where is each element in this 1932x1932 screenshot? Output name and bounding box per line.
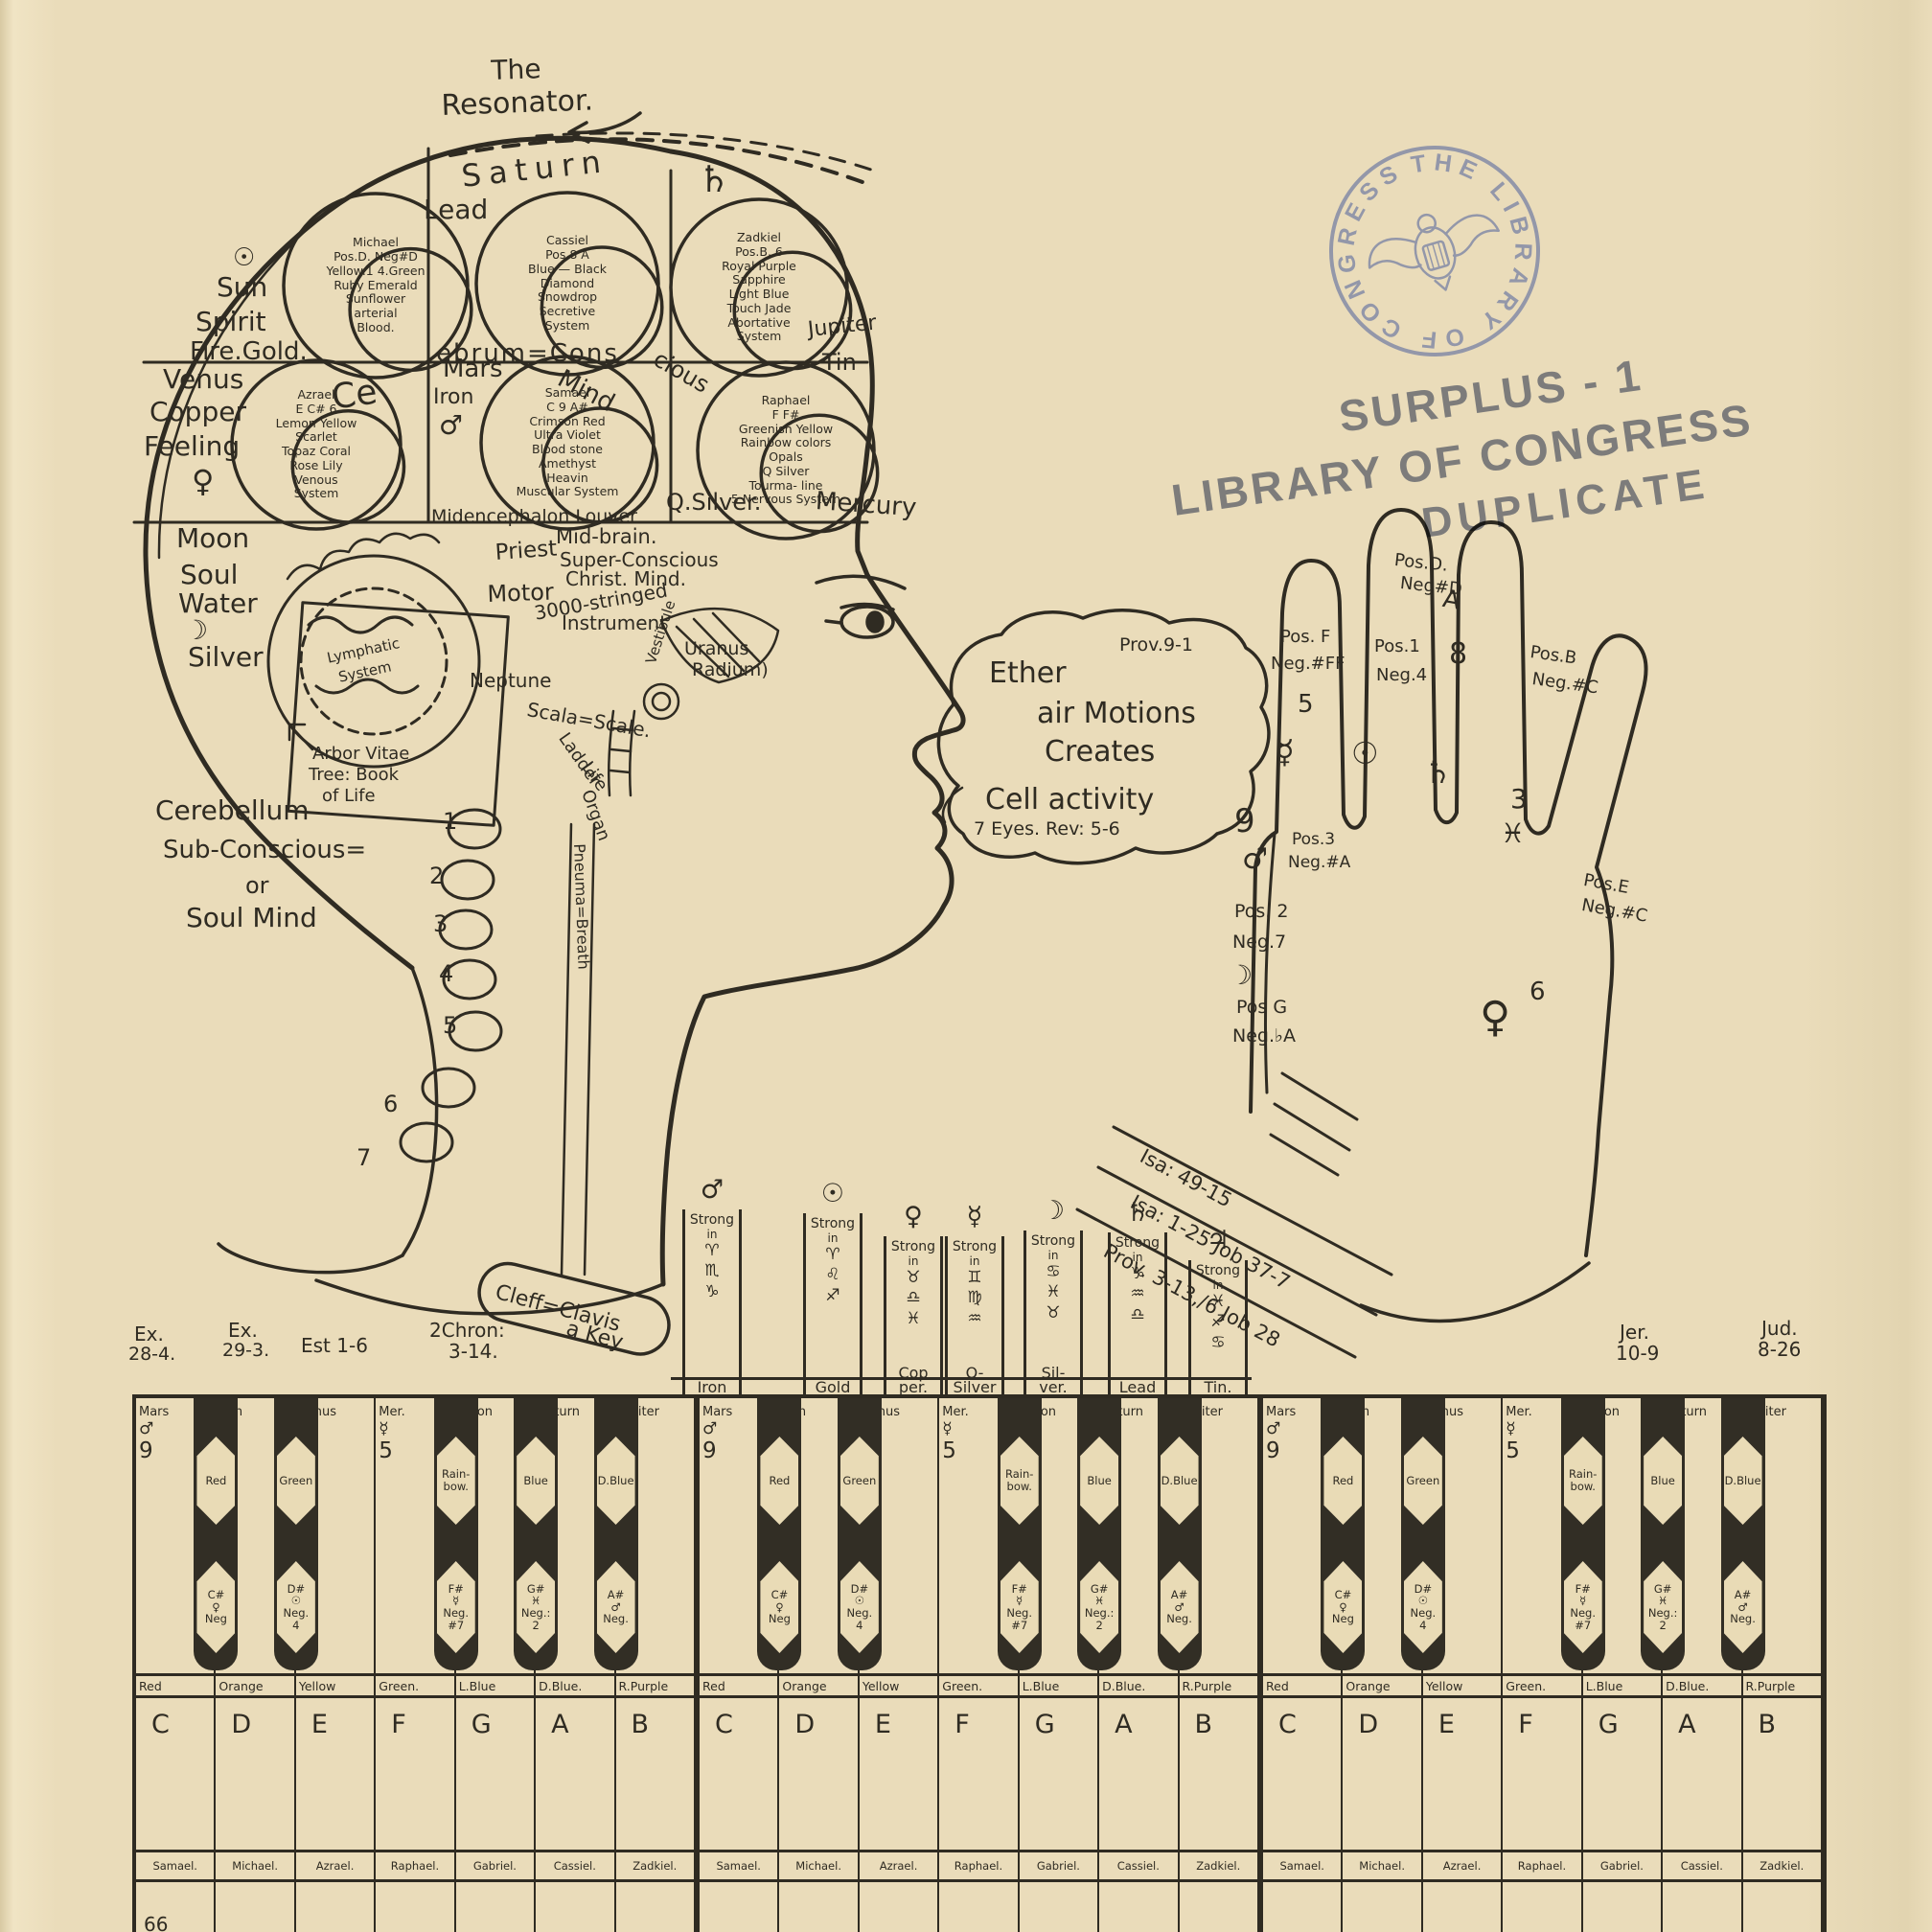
black-key-color-line: Red <box>769 1475 790 1487</box>
white-key-stub <box>1503 1882 1580 1932</box>
black-key-note-line: A# <box>1171 1589 1188 1601</box>
white-key-stub <box>296 1882 374 1932</box>
key-angel-name: Azrael. <box>1423 1850 1501 1882</box>
key-note-letter: G <box>1583 1698 1661 1850</box>
key-angel-name: Michael. <box>779 1850 857 1882</box>
black-key-note-hex: D#☉Neg.4 <box>840 1561 879 1653</box>
black-key-color-line: D.Blue <box>1725 1475 1761 1487</box>
black-key-note-hex: F#☿Neg.#7 <box>1564 1561 1602 1653</box>
black-key-color-line: Green <box>1406 1475 1439 1487</box>
black-key-A#-oct1: D.BlueA#♂Neg. <box>594 1398 638 1670</box>
keyboard-octave-1: Mars♂9RedCSamael.Sun☉1OrangeDMichael.Ven… <box>136 1398 700 1932</box>
key-color-name: Orange <box>1343 1673 1420 1698</box>
black-key-color-hex: Blue <box>1644 1437 1682 1525</box>
white-key-stub <box>616 1882 694 1932</box>
key-planet-name: Mars <box>1266 1406 1296 1419</box>
black-key-color-hex: Green <box>277 1437 315 1525</box>
black-key-note-line: C# <box>208 1589 225 1601</box>
key-color-name: L.Blue <box>456 1673 534 1698</box>
white-key-stub <box>939 1882 1017 1932</box>
hand-drawing <box>1077 510 1646 1357</box>
white-key-stub <box>216 1882 293 1932</box>
raphael-circle-outline <box>698 362 878 539</box>
cassiel-circle-outline <box>476 193 662 375</box>
key-planet-number: 9 <box>1266 1439 1296 1462</box>
key-angel-name: Raphael. <box>376 1850 453 1882</box>
black-key-color-line: D.Blue <box>598 1475 634 1487</box>
key-note-letter: B <box>616 1698 694 1850</box>
key-planet-name: Mars <box>702 1406 732 1419</box>
key-color-name: Red <box>1263 1673 1341 1698</box>
black-key-color-hex: D.Blue <box>1724 1437 1762 1525</box>
black-key-note-line: A# <box>608 1589 625 1601</box>
key-planet-name: Mer. <box>1506 1406 1532 1419</box>
key-color-name: Green. <box>376 1673 453 1698</box>
key-angel-name: Raphael. <box>939 1850 1017 1882</box>
black-key-D#-oct2: GreenD#☉Neg.4 <box>838 1398 882 1670</box>
key-color-name: Yellow <box>1423 1673 1501 1698</box>
black-key-note-line: Neg <box>769 1613 791 1625</box>
black-key-color-hex: Red <box>1323 1437 1362 1525</box>
key-planet-symbol-icon: ♂ <box>702 1421 732 1438</box>
black-key-note-hex: F#☿Neg.#7 <box>1000 1561 1039 1653</box>
key-color-name: Yellow <box>296 1673 374 1698</box>
key-color-name: R.Purple <box>1180 1673 1257 1698</box>
key-angel-name: Michael. <box>1343 1850 1420 1882</box>
michael-circle-outline <box>284 194 471 378</box>
key-note-letter: A <box>1663 1698 1740 1850</box>
black-key-color-hex: Red <box>196 1437 235 1525</box>
black-key-note-line: Neg. <box>284 1607 310 1620</box>
black-key-C#-oct1: RedC#♀Neg <box>194 1398 238 1670</box>
key-angel-name: Cassiel. <box>1663 1850 1740 1882</box>
black-key-note-line: #7 <box>1011 1620 1027 1632</box>
black-key-note-line: 2 <box>1095 1620 1102 1632</box>
key-color-name: Red <box>700 1673 777 1698</box>
black-key-color-hex: Blue <box>1080 1437 1118 1525</box>
black-key-note-line: Neg. <box>1730 1613 1756 1625</box>
white-key-stub <box>536 1882 613 1932</box>
white-key-stub <box>456 1882 534 1932</box>
eagle-icon <box>1360 196 1510 308</box>
key-note-letter: D <box>216 1698 293 1850</box>
black-key-color-hex: D.Blue <box>1161 1437 1199 1525</box>
black-key-color-hex: D.Blue <box>597 1437 635 1525</box>
white-key-stub <box>1583 1882 1661 1932</box>
black-key-color-line: D.Blue <box>1161 1475 1198 1487</box>
key-angel-name: Zadkiel. <box>1743 1850 1821 1882</box>
black-key-color-hex: Rain-bow. <box>1564 1437 1602 1525</box>
black-key-note-hex: C#♀Neg <box>760 1561 798 1653</box>
key-note-letter: A <box>1099 1698 1177 1850</box>
head-profile-drawing <box>146 113 963 1314</box>
metal-row-line <box>671 1377 1252 1380</box>
white-key-stub <box>1663 1882 1740 1932</box>
black-key-note-hex: A#♂Neg. <box>1161 1561 1199 1653</box>
key-angel-name: Cassiel. <box>1099 1850 1177 1882</box>
black-key-note-line: Neg. <box>443 1607 469 1620</box>
key-angel-name: Zadkiel. <box>1180 1850 1257 1882</box>
key-note-letter: C <box>136 1698 214 1850</box>
white-key-stub <box>1343 1882 1420 1932</box>
key-angel-name: Cassiel. <box>536 1850 613 1882</box>
key-planet-label: Mars♂9 <box>139 1406 169 1463</box>
white-key-stub <box>1743 1882 1821 1932</box>
key-note-letter: E <box>860 1698 937 1850</box>
vertebrae-drawing <box>401 810 501 1161</box>
black-key-note-line: 4 <box>1419 1620 1426 1632</box>
black-key-color-line: Red <box>1332 1475 1353 1487</box>
key-color-name: Green. <box>1503 1673 1580 1698</box>
black-key-note-line: Neg. <box>603 1613 629 1625</box>
black-key-note-line: 2 <box>1659 1620 1666 1632</box>
black-key-color-hex: Rain-bow. <box>437 1437 475 1525</box>
key-color-name: Red <box>136 1673 214 1698</box>
black-key-note-hex: D#☉Neg.4 <box>277 1561 315 1653</box>
black-key-A#-oct3: D.BlueA#♂Neg. <box>1721 1398 1765 1670</box>
samael-circle-outline <box>481 356 657 529</box>
key-color-name: Orange <box>779 1673 857 1698</box>
speech-bubble-outline <box>938 610 1269 863</box>
white-key-stub <box>136 1882 214 1932</box>
black-key-note-line: #7 <box>448 1620 464 1632</box>
key-planet-name: Mer. <box>942 1406 969 1419</box>
key-planet-symbol-icon: ♂ <box>1266 1421 1296 1438</box>
black-key-color-line: Blue <box>1087 1475 1111 1487</box>
black-key-note-line: C# <box>771 1589 789 1601</box>
black-key-color-line: Green <box>279 1475 312 1487</box>
key-planet-number: 9 <box>139 1439 169 1462</box>
black-key-note-line: Neg. <box>1166 1613 1192 1625</box>
key-color-name: Green. <box>939 1673 1017 1698</box>
black-key-note-line: A# <box>1735 1589 1752 1601</box>
white-key-stub <box>779 1882 857 1932</box>
key-color-name: Orange <box>216 1673 293 1698</box>
black-key-C#-oct2: RedC#♀Neg <box>757 1398 801 1670</box>
key-planet-number: 5 <box>379 1439 405 1462</box>
key-note-letter: F <box>939 1698 1017 1850</box>
key-note-letter: F <box>376 1698 453 1850</box>
key-color-name: D.Blue. <box>536 1673 613 1698</box>
key-color-name: R.Purple <box>1743 1673 1821 1698</box>
black-key-color-line: Green <box>842 1475 876 1487</box>
black-key-color-line: Blue <box>523 1475 547 1487</box>
key-angel-name: Gabriel. <box>1583 1850 1661 1882</box>
black-key-A#-oct2: D.BlueA#♂Neg. <box>1158 1398 1202 1670</box>
key-planet-symbol-icon: ♂ <box>139 1421 169 1438</box>
white-key-stub <box>1423 1882 1501 1932</box>
black-key-note-hex: C#♀Neg <box>1323 1561 1362 1653</box>
key-planet-name: Mer. <box>379 1406 405 1419</box>
black-key-note-hex: C#♀Neg <box>196 1561 235 1653</box>
black-key-note-hex: G#♓Neg.:2 <box>517 1561 555 1653</box>
key-planet-label: Mer.☿5 <box>1506 1406 1532 1463</box>
black-key-color-line: bow. <box>1007 1481 1032 1493</box>
key-angel-name: Gabriel. <box>456 1850 534 1882</box>
black-key-D#-oct3: GreenD#☉Neg.4 <box>1401 1398 1445 1670</box>
black-key-color-hex: Blue <box>517 1437 555 1525</box>
black-key-color-hex: Green <box>840 1437 879 1525</box>
black-key-note-hex: A#♂Neg. <box>1724 1561 1762 1653</box>
key-angel-name: Azrael. <box>296 1850 374 1882</box>
white-key-stub <box>376 1882 453 1932</box>
black-key-note-line: 2 <box>532 1620 539 1632</box>
scanned-page: THE LIBRARY OF CONGRESS ✶✶✶✶✶ TheResonat… <box>0 0 1932 1932</box>
key-angel-name: Gabriel. <box>1020 1850 1097 1882</box>
black-key-color-line: bow. <box>444 1481 469 1493</box>
black-key-note-line: 4 <box>856 1620 862 1632</box>
key-note-letter: A <box>536 1698 613 1850</box>
black-key-F#-oct2: Rain-bow.F#☿Neg.#7 <box>998 1398 1042 1670</box>
black-key-D#-oct1: GreenD#☉Neg.4 <box>274 1398 318 1670</box>
key-note-letter: C <box>1263 1698 1341 1850</box>
black-key-F#-oct3: Rain-bow.F#☿Neg.#7 <box>1561 1398 1605 1670</box>
black-key-color-line: bow. <box>1571 1481 1596 1493</box>
color-music-keyboard: Mars♂9RedCSamael.Sun☉1OrangeDMichael.Ven… <box>132 1394 1827 1932</box>
black-key-color-hex: Red <box>760 1437 798 1525</box>
key-color-name: D.Blue. <box>1099 1673 1177 1698</box>
black-key-F#-oct1: Rain-bow.F#☿Neg.#7 <box>434 1398 478 1670</box>
black-key-G#-oct3: BlueG#♓Neg.:2 <box>1641 1398 1685 1670</box>
key-note-letter: G <box>456 1698 534 1850</box>
key-planet-symbol-icon: ☿ <box>379 1421 405 1438</box>
black-key-note-line: Neg.: <box>521 1607 551 1620</box>
black-key-note-hex: G#♓Neg.:2 <box>1644 1561 1682 1653</box>
key-angel-name: Azrael. <box>860 1850 937 1882</box>
black-key-G#-oct2: BlueG#♓Neg.:2 <box>1077 1398 1121 1670</box>
white-key-stub <box>1020 1882 1097 1932</box>
black-key-note-line: Neg. <box>1411 1607 1437 1620</box>
key-angel-name: Samael. <box>1263 1850 1341 1882</box>
key-planet-number: 5 <box>1506 1439 1532 1462</box>
black-key-color-line: Red <box>205 1475 226 1487</box>
library-stamp-emblem: THE LIBRARY OF CONGRESS ✶✶✶✶✶ <box>1306 123 1562 379</box>
white-key-stub <box>1180 1882 1257 1932</box>
midbrain-drawing <box>562 609 778 1275</box>
keyboard-octave-3: Mars♂9RedCSamael.Sun☉1OrangeDMichael.Ven… <box>1263 1398 1823 1932</box>
key-note-letter: E <box>296 1698 374 1850</box>
key-color-name: L.Blue <box>1583 1673 1661 1698</box>
azrael-circle-outline <box>232 360 404 529</box>
black-key-note-hex: D#☉Neg.4 <box>1404 1561 1442 1653</box>
white-key-stub <box>1099 1882 1177 1932</box>
black-key-note-line: Neg. <box>847 1607 873 1620</box>
key-planet-number: 9 <box>702 1439 732 1462</box>
key-planet-label: Mer.☿5 <box>942 1406 969 1463</box>
key-note-letter: D <box>1343 1698 1420 1850</box>
key-color-name: D.Blue. <box>1663 1673 1740 1698</box>
key-note-letter: B <box>1743 1698 1821 1850</box>
key-note-letter: F <box>1503 1698 1580 1850</box>
key-planet-number: 5 <box>942 1439 969 1462</box>
black-key-note-hex: F#☿Neg.#7 <box>437 1561 475 1653</box>
black-key-note-line: Neg.: <box>1648 1607 1678 1620</box>
white-key-stub <box>700 1882 777 1932</box>
black-key-G#-oct1: BlueG#♓Neg.:2 <box>514 1398 558 1670</box>
black-key-note-line: Neg. <box>1006 1607 1032 1620</box>
key-note-letter: E <box>1423 1698 1501 1850</box>
key-angel-name: Raphael. <box>1503 1850 1580 1882</box>
key-note-letter: G <box>1020 1698 1097 1850</box>
key-note-letter: D <box>779 1698 857 1850</box>
key-angel-name: Samael. <box>136 1850 214 1882</box>
key-planet-label: Mars♂9 <box>1266 1406 1296 1463</box>
key-color-name: L.Blue <box>1020 1673 1097 1698</box>
key-planet-name: Mars <box>139 1406 169 1419</box>
brain-grid <box>134 149 867 522</box>
key-planet-label: Mer.☿5 <box>379 1406 405 1463</box>
key-angel-name: Michael. <box>216 1850 293 1882</box>
black-key-note-line: Neg <box>205 1613 227 1625</box>
key-note-letter: C <box>700 1698 777 1850</box>
black-key-note-line: 4 <box>292 1620 299 1632</box>
black-key-note-hex: G#♓Neg.:2 <box>1080 1561 1118 1653</box>
white-key-stub <box>1263 1882 1341 1932</box>
key-color-name: Yellow <box>860 1673 937 1698</box>
key-angel-name: Samael. <box>700 1850 777 1882</box>
key-planet-label: Mars♂9 <box>702 1406 732 1463</box>
key-planet-symbol-icon: ☿ <box>1506 1421 1532 1438</box>
keyboard-octave-2: Mars♂9RedCSamael.Sun☉1OrangeDMichael.Ven… <box>700 1398 1263 1932</box>
white-key-stub <box>860 1882 937 1932</box>
key-color-name: R.Purple <box>616 1673 694 1698</box>
cerebellum-drawing <box>268 534 508 825</box>
black-key-color-line: Blue <box>1650 1475 1674 1487</box>
zadkiel-circle-outline <box>671 199 851 376</box>
black-key-color-hex: Rain-bow. <box>1000 1437 1039 1525</box>
black-key-C#-oct3: RedC#♀Neg <box>1321 1398 1365 1670</box>
key-planet-symbol-icon: ☿ <box>942 1421 969 1438</box>
black-key-note-line: #7 <box>1575 1620 1591 1632</box>
black-key-note-line: Neg.: <box>1085 1607 1115 1620</box>
black-key-note-line: Neg <box>1332 1613 1354 1625</box>
black-key-note-line: C# <box>1335 1589 1352 1601</box>
key-note-letter: B <box>1180 1698 1257 1850</box>
black-key-note-line: Neg. <box>1570 1607 1596 1620</box>
black-key-color-hex: Green <box>1404 1437 1442 1525</box>
key-angel-name: Zadkiel. <box>616 1850 694 1882</box>
black-key-note-hex: A#♂Neg. <box>597 1561 635 1653</box>
